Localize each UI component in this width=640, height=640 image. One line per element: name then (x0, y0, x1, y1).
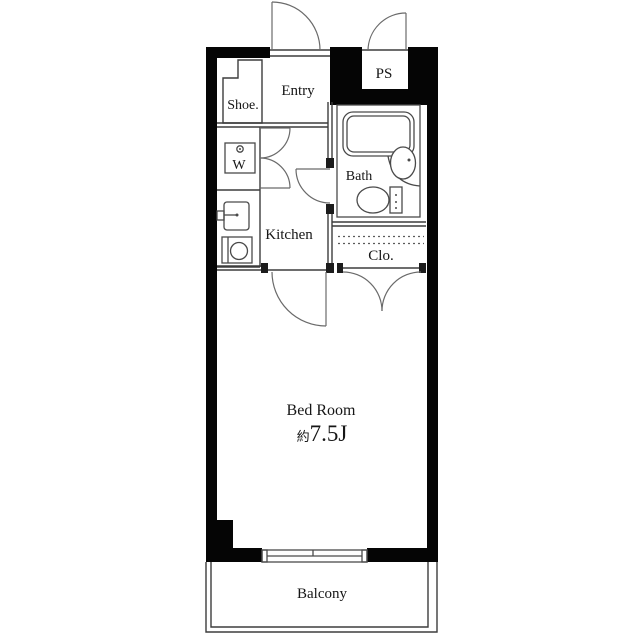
floor-plan: PS Shoe. Entry W (0, 0, 640, 640)
wall-top-right (408, 47, 438, 89)
bath-door-post-top (326, 158, 334, 168)
toilet-icon (357, 187, 389, 213)
wash-basin-icon (391, 147, 416, 179)
entry-room: Shoe. Entry (217, 2, 330, 127)
kitchen-room: Kitchen (217, 190, 313, 267)
balcony-area: Balcony (206, 562, 437, 632)
wall-top-left (206, 47, 270, 58)
wall-bottom-left (206, 548, 262, 562)
bedroom-label: Bed Room (287, 402, 356, 419)
washer-door-swing-top-icon (260, 128, 290, 158)
basin-tap-dot (408, 159, 411, 162)
kitchen-label: Kitchen (265, 227, 313, 243)
stove-burner (231, 243, 248, 260)
faucet-tip (236, 214, 239, 217)
toilet-tank (390, 187, 402, 213)
washer-label: W (232, 158, 246, 173)
bath-room: Bath (337, 105, 420, 217)
bedroom-size-value: 7.5J (310, 421, 348, 446)
washer-tap-dot (239, 148, 241, 150)
bedroom-door-post-right (326, 263, 334, 273)
washer-closet: W (217, 127, 290, 190)
outer-walls (206, 47, 438, 562)
bedroom-room: Bed Room 約7.5J (287, 402, 356, 446)
balcony-label: Balcony (297, 586, 347, 602)
bedroom-size-label: 約7.5J (297, 421, 348, 446)
closet-post-left (337, 263, 343, 273)
floor-plan-canvas: PS Shoe. Entry W (0, 0, 640, 640)
closet-door-swing-right-icon (382, 272, 421, 311)
faucet-icon (217, 211, 224, 220)
bedroom-door-swing-icon (272, 272, 326, 326)
bath-label: Bath (346, 169, 372, 184)
washer-door-swing-bottom-icon (260, 158, 290, 188)
shoe-closet-outline (223, 60, 262, 123)
wall-below-ps (330, 89, 427, 105)
closet-room: Clo. (332, 222, 426, 264)
bath-door-post-bottom (326, 204, 334, 214)
wall-right (427, 47, 438, 562)
toilet-detail-dot-1 (395, 194, 397, 196)
bedroom-wall (217, 263, 426, 326)
bath-door-swing-icon (296, 169, 330, 203)
ps-room: PS (362, 13, 408, 89)
ps-label: PS (376, 66, 393, 82)
closet-label: Clo. (368, 248, 393, 264)
bathtub-inner (347, 116, 410, 152)
toilet-detail-dot-2 (395, 201, 397, 203)
shoe-label: Shoe. (227, 98, 259, 113)
closet-door-swing-left-icon (343, 272, 382, 311)
entry-door-swing-icon (272, 2, 320, 50)
wall-left (206, 47, 217, 523)
bedroom-door-post-left (261, 263, 268, 273)
entry-label: Entry (281, 83, 315, 99)
toilet-detail-dot-3 (395, 207, 397, 209)
bedroom-size-prefix: 約 (297, 429, 310, 444)
sliding-window (262, 550, 367, 562)
ps-door-swing-icon (368, 13, 406, 51)
